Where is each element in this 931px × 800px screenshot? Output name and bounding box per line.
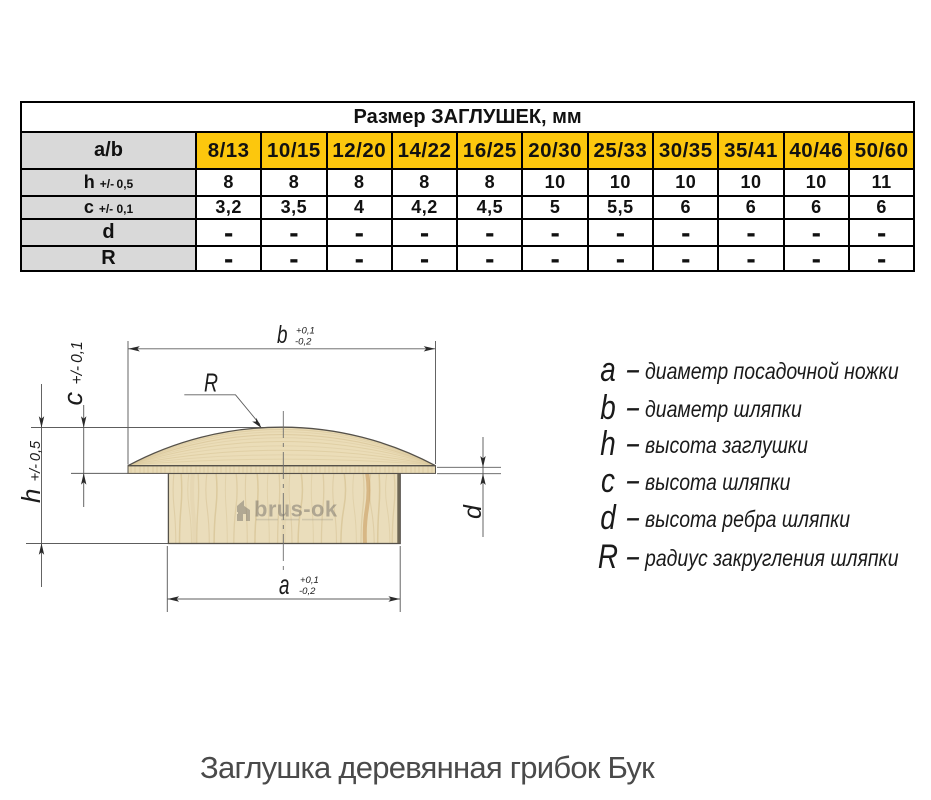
svg-text:-0,2: -0,2 [299,586,316,597]
svg-text:brus-ok: brus-ok [254,497,338,522]
svg-text:R: R [204,368,218,398]
svg-text:c +/- 0,1: c +/- 0,1 [58,341,88,405]
svg-text:-0,2: -0,2 [295,337,312,348]
svg-text:a: a [279,569,290,600]
svg-text:b: b [277,321,288,349]
svg-text:+0,1: +0,1 [296,326,315,337]
svg-text:d: d [459,504,487,519]
svg-text:+0,1: +0,1 [300,575,319,586]
svg-text:h +/- 0,5: h +/- 0,5 [16,440,46,503]
